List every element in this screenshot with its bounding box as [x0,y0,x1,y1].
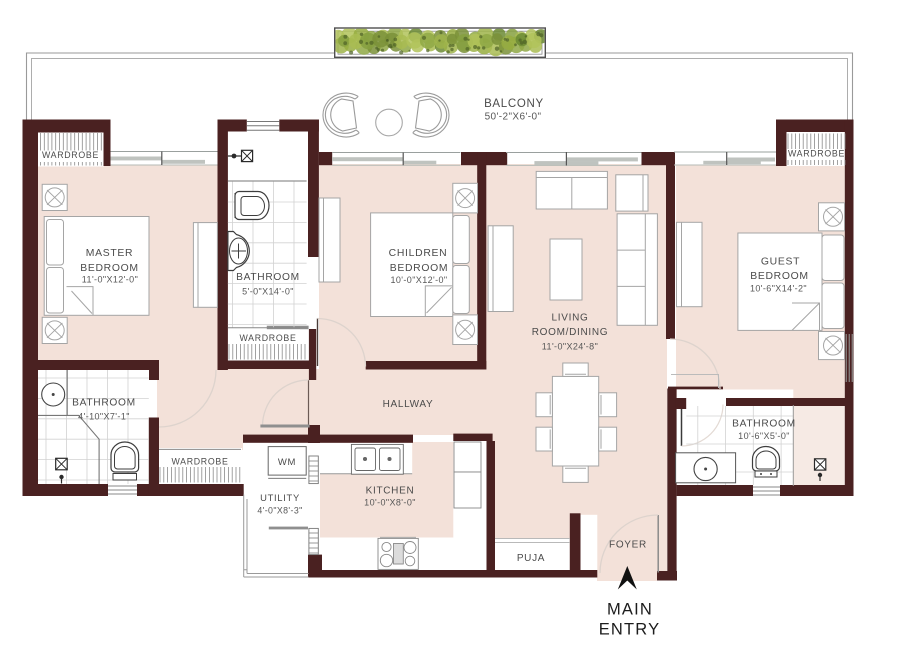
svg-text:11'-0"X24'-8": 11'-0"X24'-8" [542,342,598,352]
svg-text:WM: WM [278,457,296,468]
svg-text:UTILITY: UTILITY [260,492,300,503]
svg-text:ROOM/DINING: ROOM/DINING [532,327,609,338]
svg-text:PUJA: PUJA [517,553,545,564]
svg-text:MASTER: MASTER [86,248,134,259]
svg-text:FOYER: FOYER [609,540,647,551]
svg-text:BATHROOM: BATHROOM [732,419,796,430]
svg-text:GUEST: GUEST [761,257,800,268]
svg-text:BEDROOM: BEDROOM [750,271,809,282]
svg-text:ENTRY: ENTRY [599,621,661,639]
svg-text:BEDROOM: BEDROOM [80,263,139,274]
svg-text:10'-6"X14'-2": 10'-6"X14'-2" [750,284,807,294]
svg-text:LIVING: LIVING [552,313,589,324]
svg-text:WARDROBE: WARDROBE [239,333,296,343]
svg-text:10'-0"X12'-0": 10'-0"X12'-0" [390,275,447,285]
svg-text:11'-0"X12'-0": 11'-0"X12'-0" [82,275,138,285]
svg-text:MAIN: MAIN [607,601,653,619]
svg-text:10'-0"X8'-0": 10'-0"X8'-0" [364,498,416,508]
svg-text:5'-0"X14'-0": 5'-0"X14'-0" [242,287,294,297]
svg-text:BALCONY: BALCONY [484,98,544,110]
svg-text:HALLWAY: HALLWAY [383,399,434,410]
svg-text:BATHROOM: BATHROOM [72,398,136,409]
svg-text:4'-0"X8'-3": 4'-0"X8'-3" [257,506,302,516]
svg-text:50'-2"X6'-0": 50'-2"X6'-0" [485,112,542,123]
svg-text:WARDROBE: WARDROBE [788,149,845,159]
svg-text:4'-10"X7'-1": 4'-10"X7'-1" [78,412,130,422]
svg-text:KITCHEN: KITCHEN [366,486,415,497]
svg-text:BATHROOM: BATHROOM [236,272,300,283]
svg-text:BEDROOM: BEDROOM [390,263,449,274]
svg-text:10'-6"X5'-0": 10'-6"X5'-0" [738,431,790,441]
svg-text:CHILDREN: CHILDREN [389,248,448,259]
svg-text:WARDROBE: WARDROBE [171,457,228,467]
svg-text:WARDROBE: WARDROBE [42,150,99,160]
